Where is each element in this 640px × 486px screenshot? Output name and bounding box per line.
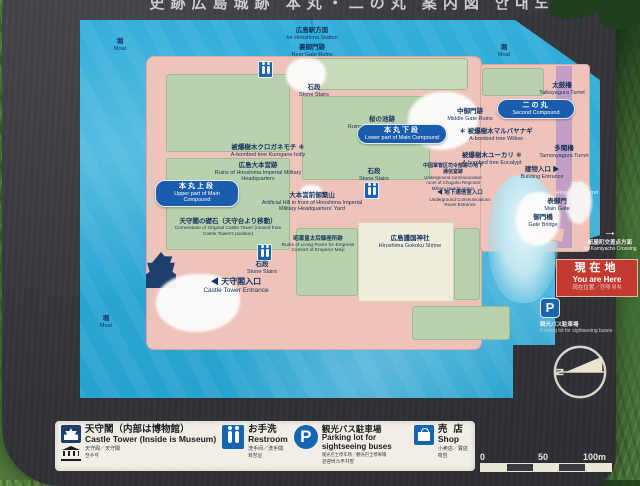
you-are-here-badge: 現在地 You are Here 现在位置／현재 위치 [556,259,638,297]
label-station: 広島駅方面 for Hiroshima Station [286,27,337,41]
courtyard [454,228,480,300]
label-artificial-hill: 大本営前御築山 Artificial Hill in front of Hiro… [254,192,370,213]
label-holly: 被爆樹木クロガネモチ ✽ A-bombed tree Kurogane holl… [231,144,306,158]
pill-upper-main-compound: 本丸上段 Upper part of Main Compound [155,180,239,207]
museum-icon [61,446,81,461]
compass-north-letter: N [555,368,567,376]
legend-parking: P 観光バス駐車場 Parking lot for sightseeing bu… [294,425,408,465]
station-arrow-icon: ↑ [309,16,315,27]
courtyard [412,306,510,340]
label-middle-gate: 中御門跡 Middle Gate Ruins [447,108,492,122]
compass-rose: N [551,343,609,401]
scale-bar-segments [480,463,612,472]
label-stairs-low: 石段 Stone Stairs [247,261,277,275]
sign-title-text: 史跡広島城跡 本丸・二の丸 案内図 안내도 [150,0,555,12]
scale-100m: 100m [583,452,606,462]
pill-second-compound: 二の丸 Second Compound [497,99,575,119]
shop-icon [414,425,434,445]
scale-50: 50 [538,452,548,462]
label-underground-entrance: ◀ 地下通信室入口 Underground Communications Roo… [427,190,493,207]
courtyard [166,74,290,152]
compass-icon: N [551,343,609,401]
restroom-icon [222,425,244,449]
shrine-grounds [358,222,454,302]
label-willow: ✽ 被爆樹木マルバヤナギ A-bombed tree Willow [459,128,532,142]
legend-castle-tower: 天守閣（内部は博物館） Castle Tower (Inside is Muse… [61,425,216,461]
kamiyacho-arrow-icon: → [580,224,640,238]
legend-shop: 売店 Shop 小卖店／賣店 매점 [414,425,469,459]
scale-bar: 0 50 100m [480,452,612,472]
legend-restroom: お手洗 Restroom 洗手间／洗手間 화장실 [222,425,288,459]
label-moat-1: 堀 Moat [114,38,126,52]
parking-icon: P [294,425,318,449]
label-tower-entrance: ◀ 天守閣入口 Castle Tower Entrance [203,277,268,294]
label-cornerstone: 天守閣の礎石（天守台より移動） Cornerstone of Original … [168,218,288,237]
label-moat-3: 堀 Moat [100,315,112,329]
restroom-icon [258,61,273,78]
label-stairs-top: 石段 Stone Stairs [299,84,329,98]
signboard-photo: 史跡広島城跡 本丸・二の丸 案内図 안내도 ↑ 広島駅方面 for Hirosh… [0,0,640,480]
pill-lower-main-compound: 本丸下段 Lower part of Main Compound [357,124,447,144]
parking-callout: P 観光バス駐車場 Parking lot for sightseeing bu… [540,298,636,334]
label-underground-room: 中国軍管区司令部跡の地下通信室跡 Underground communicati… [422,163,484,191]
label-gate-bridge: 御門橋 Gate Bridge [528,214,557,228]
label-tamonyagura: 多聞櫓 Tamonyagura Turret [539,145,588,159]
legend-strip: 天守閣（内部は博物館） Castle Tower (Inside is Muse… [55,421,475,471]
label-kamiyacho: → 紙屋町交差点方面 for Kamiyacho Crossing [580,224,640,252]
label-main-gate: 表御門 Main Gate [544,198,569,212]
scale-0: 0 [480,452,485,462]
parking-icon: P [540,298,560,318]
courtyard [482,68,544,96]
sign-title: 史跡広島城跡 本丸・二の丸 案内図 안내도 [92,0,612,13]
castle-icon [61,425,81,443]
label-taikoyagura: 太鼓櫓 Taikoyagura Turret [539,82,585,96]
label-moat-2: 堀 Moat [498,44,510,58]
label-hirayagura: 平櫓 Hirayagura Turret [556,182,599,196]
label-rear-gate: 裏御門跡 Rear Gate Ruins [292,44,333,58]
label-gokoku-shrine: 広島護国神社 Hiroshima Gokoku Shrine [379,235,442,249]
label-empress-room: 昭憲皇太后御座所跡 Ruins of Living Room for Empre… [277,236,359,254]
label-stairs-mid: 石段 Stone Stairs [359,168,389,182]
restroom-icon [257,244,272,261]
label-building-entrance: 建物入口 ▶ Building Entrance [520,166,563,180]
